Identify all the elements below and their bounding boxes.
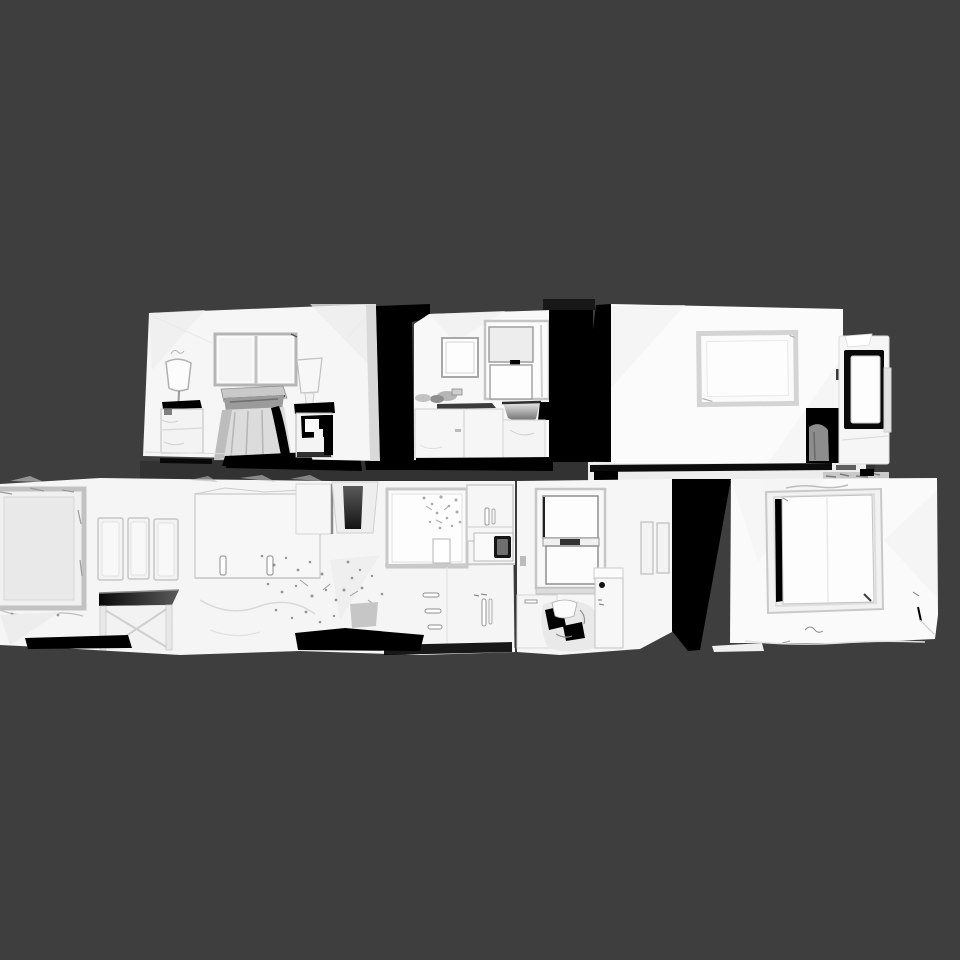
floor-slab-shadow-dash (836, 465, 856, 470)
wall-panels (98, 518, 178, 580)
laundry-nook (517, 479, 672, 655)
counter-edge (385, 564, 515, 565)
cabinet-knob (599, 582, 605, 588)
range-hood (332, 482, 378, 533)
upper-floor (143, 299, 891, 468)
large-window (766, 485, 883, 613)
cabinet-handle (267, 556, 273, 575)
room-bedroom (143, 304, 380, 468)
cabinet-handle (485, 508, 489, 525)
bathroom-roof-shadow (543, 299, 595, 310)
bathroom-sink (502, 402, 552, 421)
dresser (161, 400, 203, 453)
drawer-handle (425, 609, 441, 613)
window-switch-box (433, 539, 450, 563)
door-glass-pane (851, 356, 880, 423)
bedroom-window (215, 334, 297, 385)
bathroom-window (485, 321, 549, 399)
picture-frame (0, 488, 84, 619)
glass-door-panel (839, 334, 891, 464)
wall-frame-small (657, 523, 669, 573)
living-doorway (806, 408, 839, 463)
laundry-side-cabinet (594, 568, 623, 648)
cabinet-handle (220, 556, 226, 575)
bathroom-floor-shadow (416, 457, 553, 466)
living-wall-frame (699, 332, 797, 404)
kitchen-window (387, 489, 467, 567)
cabinet-handle (482, 599, 486, 626)
room-bathroom (414, 310, 553, 466)
drawer-handle (525, 600, 537, 603)
wall-frame-small (641, 522, 653, 574)
microwave (474, 533, 513, 561)
cabinet-divider-shadow (515, 565, 516, 648)
mesh-viewport[interactable] (0, 0, 960, 960)
floor-dark-patch-2 (594, 471, 618, 480)
gray-patch (350, 602, 378, 628)
end-bedroom (730, 478, 938, 644)
kitchen-left-cabinet (296, 484, 332, 534)
upper-floor-slab (588, 462, 889, 481)
laundry-pile (541, 600, 600, 652)
drawer-handle (428, 625, 442, 629)
nightstand (294, 402, 335, 457)
bathroom-mirror (442, 338, 478, 377)
wall-mark (520, 556, 526, 566)
floor-dark-patch (860, 469, 874, 476)
lower-floor (0, 475, 938, 655)
drawer-handle (423, 593, 439, 597)
counter-shadow-line (437, 403, 496, 409)
